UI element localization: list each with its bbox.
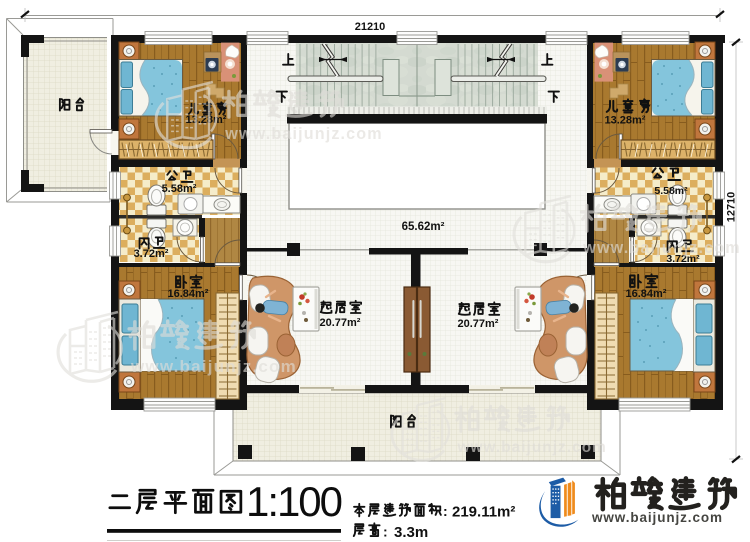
svg-text:www.baijunjz.com: www.baijunjz.com [582,239,741,257]
svg-text:3.72m²: 3.72m² [134,248,169,260]
svg-text:16.84m²: 16.84m² [626,288,667,300]
svg-text:13.28m²: 13.28m² [605,115,646,127]
svg-text:5.58m²: 5.58m² [162,183,197,195]
svg-text:20.77m²: 20.77m² [458,318,499,330]
svg-text::: : [443,503,448,519]
svg-text:20.77m²: 20.77m² [320,317,361,329]
svg-text::: : [383,524,388,540]
svg-text:www.baijunjz.com: www.baijunjz.com [457,439,607,456]
svg-text:www.baijunjz.com: www.baijunjz.com [591,510,723,525]
svg-text:16.84m²: 16.84m² [168,288,209,300]
svg-text:21210: 21210 [355,21,386,33]
svg-text:www.baijunjz.com: www.baijunjz.com [130,357,297,376]
svg-text:12710: 12710 [726,192,738,223]
svg-text:1:100: 1:100 [246,478,343,525]
svg-text:219.11m²: 219.11m² [452,504,515,521]
svg-text:www.baijunjz.com: www.baijunjz.com [224,125,383,143]
svg-text:65.62m²: 65.62m² [402,221,445,233]
svg-text:3.3m: 3.3m [394,524,428,541]
svg-text:5.58m²: 5.58m² [654,185,688,197]
